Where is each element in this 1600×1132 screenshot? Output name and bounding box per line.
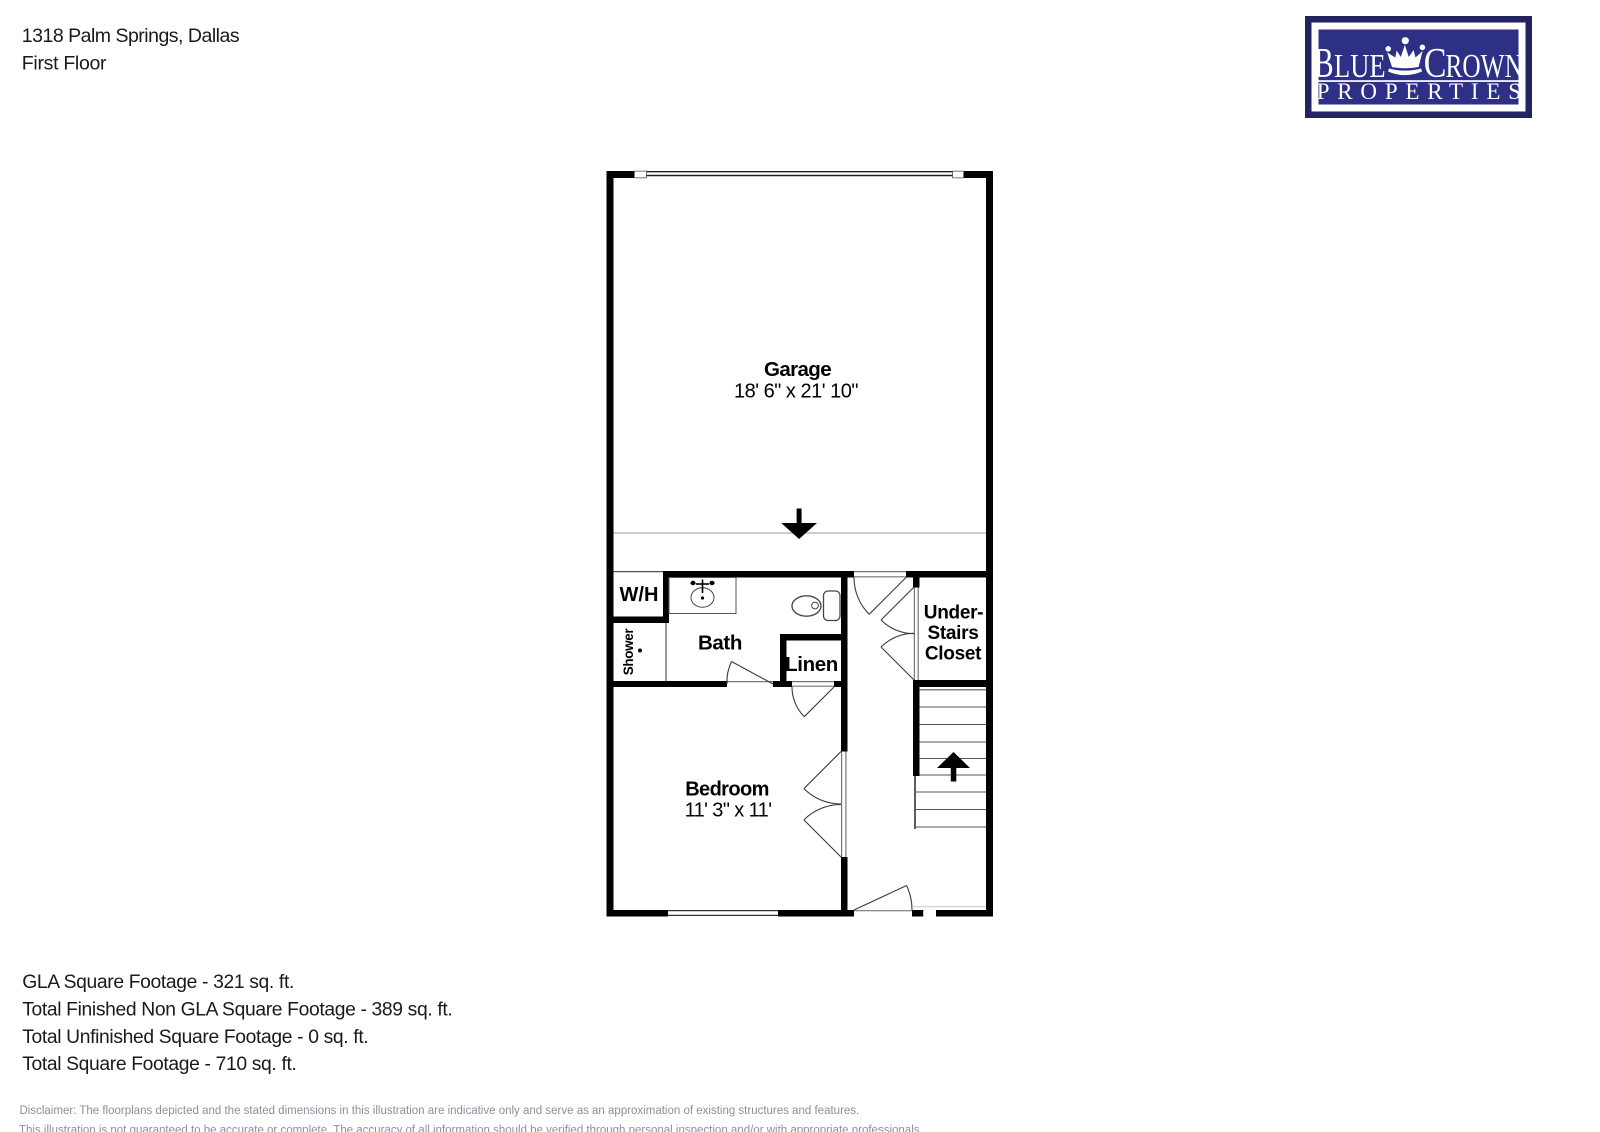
svg-text:PROPERTIES: PROPERTIES: [1317, 79, 1529, 104]
svg-text:Total Finished Non GLA Square: Total Finished Non GLA Square Footage - …: [22, 999, 452, 1020]
svg-text:GLA Square Footage - 321 sq. f: GLA Square Footage - 321 sq. ft.: [22, 972, 294, 993]
svg-text:1318 Palm Springs, Dallas: 1318 Palm Springs, Dallas: [22, 25, 240, 47]
svg-text:Stairs: Stairs: [927, 623, 978, 644]
svg-text:This illustration is not guara: This illustration is not guaranteed to b…: [19, 1125, 923, 1132]
svg-text:Shower: Shower: [621, 628, 636, 676]
svg-text:Garage: Garage: [764, 358, 831, 381]
svg-text:First Floor: First Floor: [22, 53, 107, 75]
svg-text:Total Square Footage - 710 sq.: Total Square Footage - 710 sq. ft.: [22, 1054, 296, 1075]
svg-text:Total Unfinished Square Footag: Total Unfinished Square Footage - 0 sq. …: [22, 1027, 368, 1048]
svg-text:W/H: W/H: [620, 584, 659, 606]
svg-text:Under-: Under-: [924, 603, 983, 624]
svg-text:Linen: Linen: [785, 653, 838, 676]
svg-text:Bedroom: Bedroom: [685, 779, 769, 801]
svg-text:18' 6" x 21' 10": 18' 6" x 21' 10": [734, 381, 858, 403]
svg-text:11' 3" x 11': 11' 3" x 11': [685, 800, 772, 822]
svg-text:Closet: Closet: [925, 644, 982, 665]
svg-text:Disclaimer: The floorplans dep: Disclaimer: The floorplans depicted and …: [20, 1105, 860, 1117]
svg-text:Bath: Bath: [698, 632, 742, 655]
